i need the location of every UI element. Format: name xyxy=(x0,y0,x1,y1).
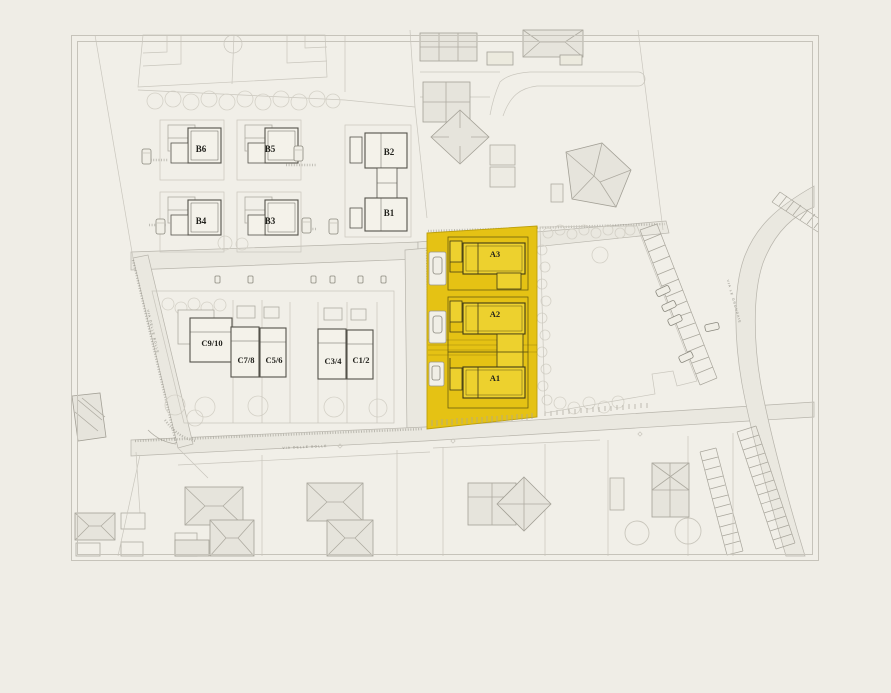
unit-label-c3-4: C3/4 xyxy=(325,356,343,366)
unit-label-a3: A3 xyxy=(490,249,500,259)
unit-label-a1: A1 xyxy=(490,373,500,383)
site-plan-page: B6 B5 B2 B4 B3 B1 C9/10 C7/8 C5/6 C3/4 C… xyxy=(0,0,891,693)
unit-label-b4: B4 xyxy=(196,216,207,226)
unit-label-c9-10: C9/10 xyxy=(201,338,222,348)
site-plan-canvas: B6 B5 B2 B4 B3 B1 C9/10 C7/8 C5/6 C3/4 C… xyxy=(0,0,891,693)
unit-label-b2: B2 xyxy=(384,147,395,157)
unit-label-c5-6: C5/6 xyxy=(266,355,283,365)
unit-label-b6: B6 xyxy=(196,144,207,154)
unit-label-b1: B1 xyxy=(384,208,395,218)
unit-label-c1-2: C1/2 xyxy=(353,355,370,365)
unit-label-c7-8: C7/8 xyxy=(238,355,255,365)
unit-label-a2: A2 xyxy=(490,309,500,319)
unit-label-b5: B5 xyxy=(265,144,276,154)
parking-bays-a xyxy=(429,252,446,386)
unit-label-b3: B3 xyxy=(265,216,276,226)
